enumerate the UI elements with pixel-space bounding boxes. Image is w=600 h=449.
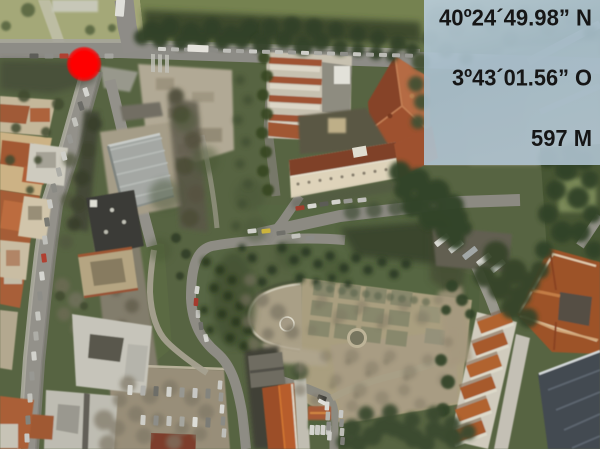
svg-text:597 M: 597 M (531, 125, 592, 151)
svg-text:3º43´01.56” O: 3º43´01.56” O (452, 64, 592, 90)
svg-text:40º24´49.98” N: 40º24´49.98” N (439, 5, 592, 31)
